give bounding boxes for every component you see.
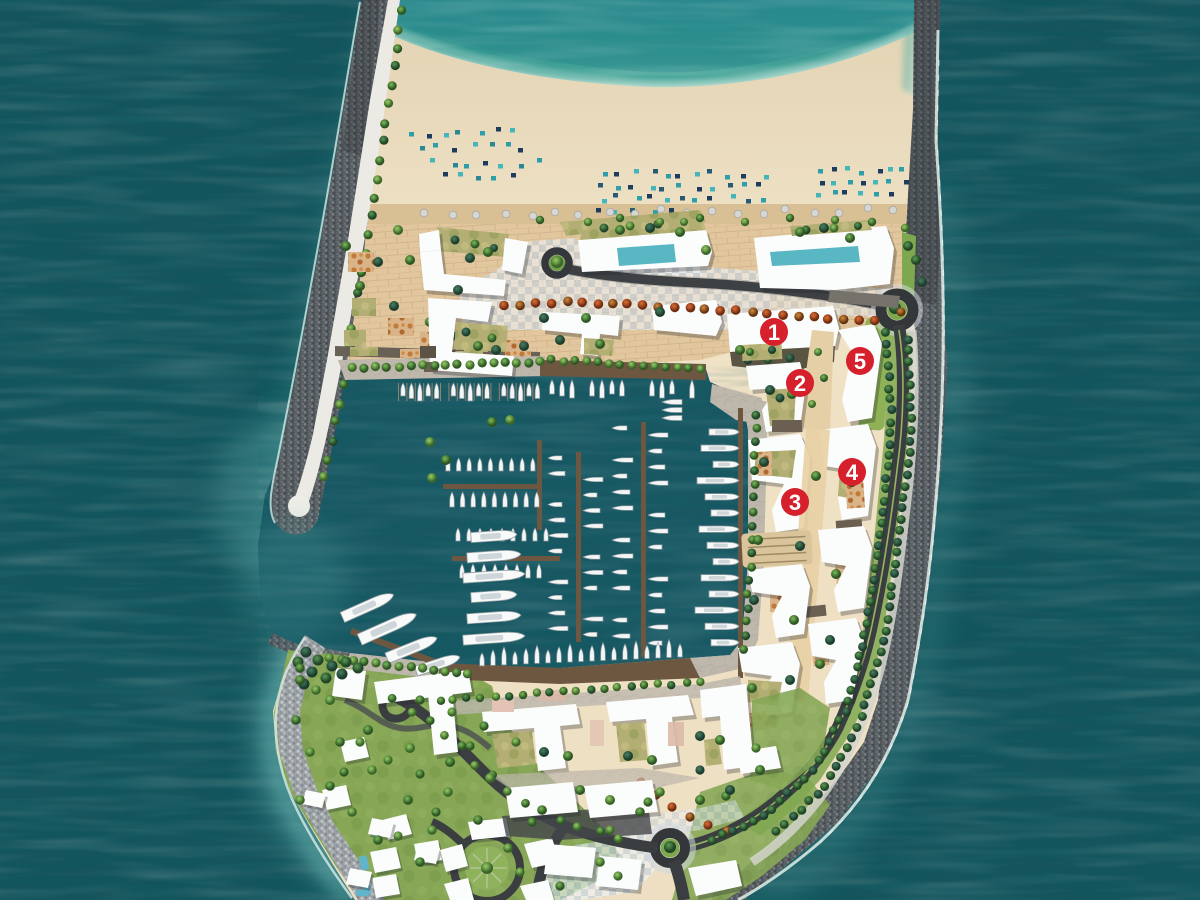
svg-text:4: 4 [846,460,859,485]
svg-text:5: 5 [854,349,866,374]
svg-text:2: 2 [794,371,806,396]
svg-text:3: 3 [789,490,801,515]
svg-text:1: 1 [768,320,780,345]
